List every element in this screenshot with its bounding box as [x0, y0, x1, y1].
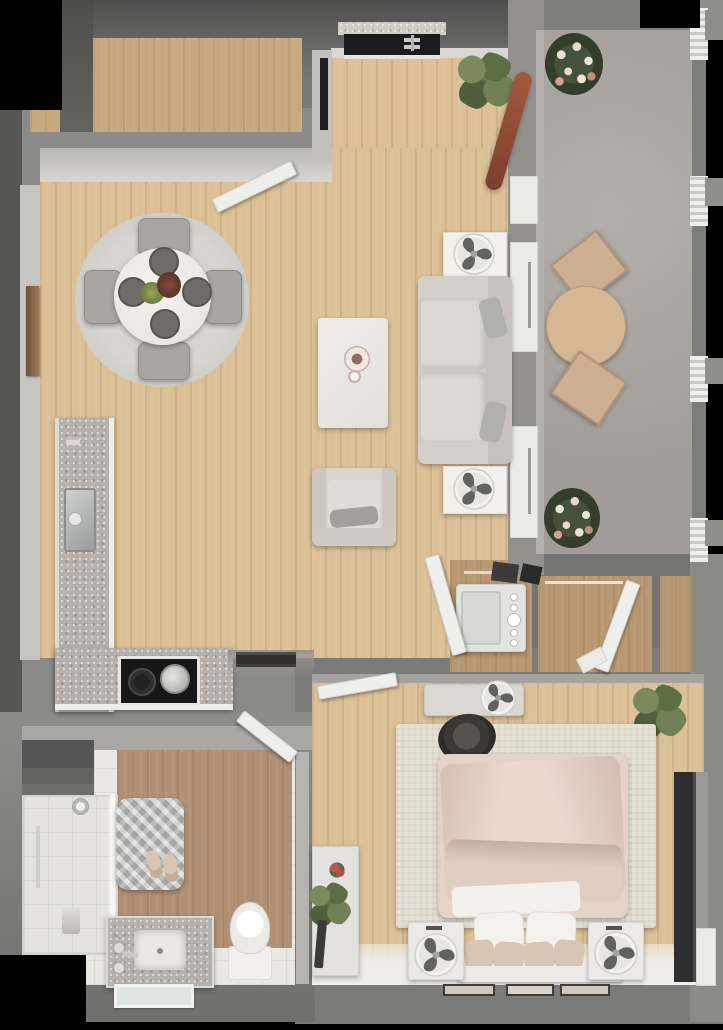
entry-hall-floor	[93, 38, 302, 132]
washer-door	[461, 591, 501, 645]
washing-machine	[456, 584, 526, 652]
railing-post-1	[705, 10, 723, 40]
cooktop-burner	[128, 668, 156, 696]
dining-left-wall-face	[20, 185, 40, 660]
nightstand-right-handle	[606, 926, 622, 930]
sofa-armrest-top	[418, 276, 488, 298]
place-setting-east	[182, 277, 212, 307]
serving-tray	[236, 652, 296, 667]
washer-knob-3	[510, 629, 518, 637]
nightstand-fan-right	[594, 931, 638, 975]
sofa-seat-cushion-1	[421, 300, 487, 369]
closet-clothes-rod	[545, 581, 623, 584]
shower-rail	[36, 826, 40, 888]
sofa	[418, 276, 512, 464]
picture-frame-3	[560, 984, 610, 996]
coffee-table-vase	[344, 346, 370, 372]
balcony-plant-south	[544, 488, 600, 548]
armchair-back	[312, 528, 396, 546]
window-small	[510, 176, 538, 224]
exterior-corner-top-left	[0, 0, 62, 110]
exterior-bottom-strip	[86, 1024, 723, 1030]
table-fan-south	[453, 468, 495, 510]
bed-pillow-beige-4	[553, 939, 586, 970]
washer-knob-1	[510, 593, 518, 601]
entry-hall-pillar-wall	[60, 0, 93, 132]
bedroom-wall-tv	[674, 772, 696, 982]
laundry-shelf-rail	[464, 571, 494, 574]
nightstand-fan-left	[414, 933, 458, 977]
railing-post-3	[705, 358, 723, 384]
washer-knob-2	[510, 604, 518, 612]
front-door-sill	[344, 55, 440, 59]
vanity-faucet-handle-2	[113, 962, 125, 974]
sliding-door-lower-handle	[528, 448, 531, 514]
dresser-flowers	[326, 858, 348, 882]
coffee-table-cup	[348, 370, 361, 383]
armchair	[312, 468, 396, 546]
floor-plan-render	[0, 0, 723, 1030]
sliding-door-upper-handle	[528, 262, 531, 328]
exterior-corner-top-right	[640, 0, 700, 28]
bench-fan	[480, 680, 516, 716]
picture-frame-1	[443, 984, 495, 996]
balcony-outer-black	[706, 28, 723, 554]
sofa-armrest-bottom	[418, 442, 488, 464]
railing-post-4	[705, 520, 723, 546]
centerpiece-flowers	[157, 272, 181, 298]
laundry-dark-item	[519, 563, 542, 585]
dresser-plant	[306, 882, 352, 928]
bedroom-closet-panel	[696, 928, 716, 986]
dining-chair-south	[138, 342, 190, 380]
laundry-shelf-bag	[491, 561, 519, 583]
shower-head	[72, 798, 89, 815]
nightstand-left-handle	[426, 926, 442, 930]
vanity-mirror	[114, 984, 194, 1008]
exterior-corner-bottom-left	[0, 955, 86, 1030]
cooktop-pot	[160, 664, 190, 694]
front-door-handle-stem	[411, 35, 414, 51]
bed-pillow-beige-1	[463, 939, 495, 970]
front-door-recess	[344, 34, 440, 57]
toilet-seat	[230, 902, 270, 954]
vanity-drain	[157, 948, 163, 954]
table-fan-north	[453, 233, 495, 275]
bathroom-right-wall-face	[296, 752, 309, 984]
linen-niche	[22, 740, 94, 798]
washer-knob-large	[507, 613, 521, 627]
place-setting-south	[150, 309, 180, 339]
kitchen-upper-faucet	[66, 440, 80, 445]
shower-fixture	[62, 908, 80, 934]
sofa-seat-cushion-2	[421, 372, 487, 441]
living-wall-tv	[320, 58, 328, 130]
dining-wall-art	[26, 286, 39, 376]
picture-frame-2	[506, 984, 554, 996]
sliding-door-upper	[510, 242, 538, 352]
railing-post-2	[705, 178, 723, 206]
storage-closet-floor	[660, 576, 692, 672]
washer-knob-4	[510, 639, 518, 647]
kitchen-sink-faucet	[68, 512, 82, 526]
balcony-plant-north	[545, 33, 603, 95]
sliding-door-lower	[510, 426, 538, 538]
